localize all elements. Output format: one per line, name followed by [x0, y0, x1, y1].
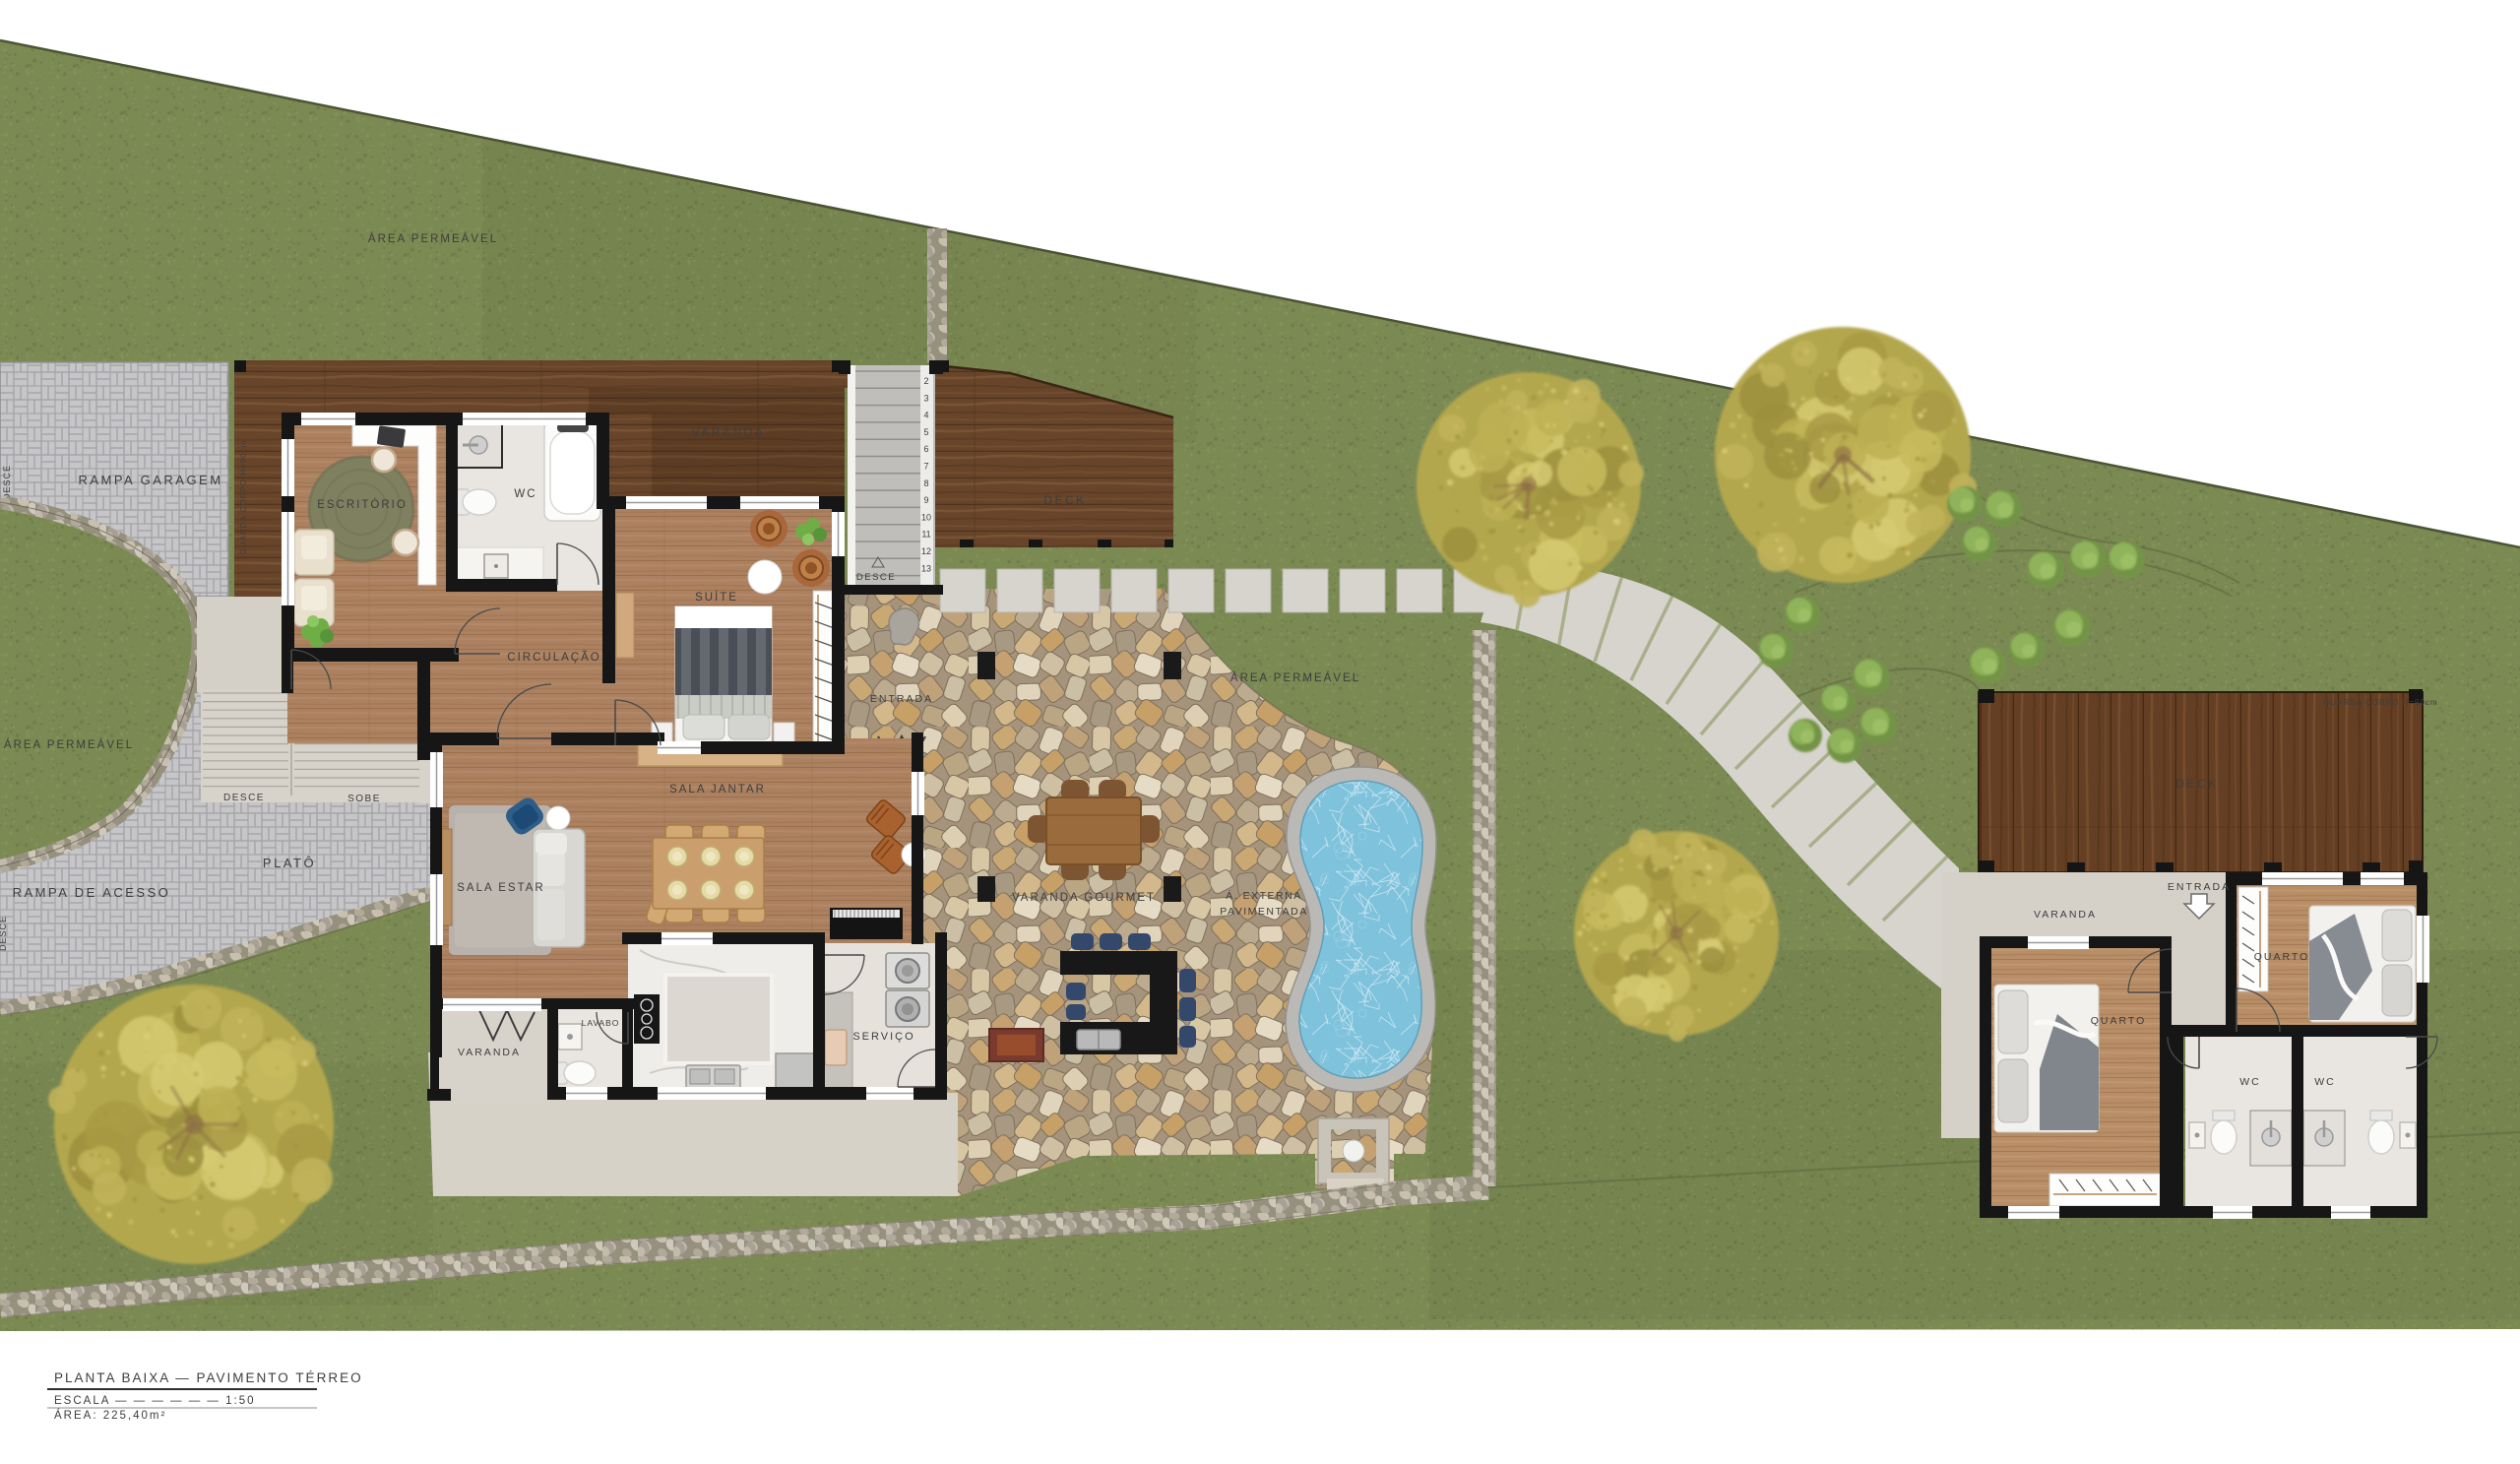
svg-text:WC: WC — [514, 488, 536, 500]
svg-text:10: 10 — [921, 512, 931, 522]
svg-text:WC: WC — [2239, 1076, 2261, 1088]
svg-text:QUARTO: QUARTO — [2091, 1015, 2147, 1027]
svg-text:GUARDA CORPO H=90cm: GUARDA CORPO H=90cm — [239, 440, 248, 555]
svg-text:9: 9 — [923, 495, 928, 505]
svg-text:VARANDA: VARANDA — [692, 425, 766, 439]
svg-text:WC: WC — [2314, 1076, 2336, 1088]
svg-text:DESCE: DESCE — [0, 916, 8, 951]
svg-text:ÁREA PERMEÁVEL: ÁREA PERMEÁVEL — [1230, 671, 1360, 684]
svg-text:PAVIMENTADA: PAVIMENTADA — [1220, 906, 1307, 918]
svg-text:3: 3 — [923, 393, 928, 403]
svg-text:11: 11 — [921, 530, 930, 540]
svg-text:SOBE: SOBE — [347, 794, 381, 804]
svg-text:ÁREA PERMEÁVEL: ÁREA PERMEÁVEL — [368, 232, 498, 245]
svg-text:ENTRADA: ENTRADA — [870, 693, 933, 705]
svg-text:ESCRITÓRIO: ESCRITÓRIO — [317, 498, 408, 511]
svg-text:VARANDA: VARANDA — [458, 1047, 521, 1058]
svg-text:SUÍTE: SUÍTE — [695, 591, 738, 604]
svg-text:SERVIÇO: SERVIÇO — [852, 1031, 914, 1043]
svg-text:ESCALA — — — — — — 1:50: ESCALA — — — — — — 1:50 — [54, 1395, 256, 1407]
svg-text:SALA JANTAR: SALA JANTAR — [669, 784, 766, 796]
svg-text:13: 13 — [921, 563, 931, 573]
svg-text:ENTRADA: ENTRADA — [2168, 881, 2231, 893]
svg-text:ÁREA PERMEÁVEL: ÁREA PERMEÁVEL — [4, 738, 134, 751]
svg-text:Á. EXTERNA: Á. EXTERNA — [1226, 889, 1301, 902]
svg-text:2: 2 — [923, 376, 928, 386]
svg-text:DECK: DECK — [1043, 493, 1086, 507]
svg-text:ÁREA: 225,40m²: ÁREA: 225,40m² — [54, 1409, 166, 1422]
svg-text:PLANTA BAIXA — PAVIMENTO T: PLANTA BAIXA — PAVIMENTO TÉRREO — [54, 1370, 363, 1385]
svg-text:12: 12 — [921, 546, 931, 556]
svg-text:6: 6 — [923, 444, 928, 454]
svg-text:8: 8 — [923, 478, 928, 488]
svg-text:DESCE: DESCE — [856, 572, 896, 583]
svg-text:SALA ESTAR: SALA ESTAR — [457, 882, 544, 894]
svg-text:4: 4 — [923, 411, 928, 420]
svg-text:DESCE: DESCE — [223, 793, 265, 803]
svg-text:7: 7 — [923, 462, 928, 472]
svg-text:PLATÔ: PLATÔ — [263, 856, 316, 870]
svg-text:RAMPA GARAGEM: RAMPA GARAGEM — [78, 473, 222, 487]
svg-text:5: 5 — [923, 427, 928, 437]
svg-text:VARANDA: VARANDA — [2034, 909, 2097, 921]
svg-text:CIRCULAÇÃO: CIRCULAÇÃO — [507, 651, 600, 664]
svg-text:RAMPA DE ACESSO: RAMPA DE ACESSO — [13, 885, 171, 900]
svg-text:QUARTO: QUARTO — [2254, 951, 2310, 963]
svg-text:GUARDA CORPO H=90cm: GUARDA CORPO H=90cm — [2323, 698, 2438, 707]
svg-text:VARANDA GOURMET: VARANDA GOURMET — [1012, 892, 1156, 904]
svg-text:DESCE: DESCE — [2, 465, 12, 500]
svg-text:DECK: DECK — [2175, 777, 2218, 791]
